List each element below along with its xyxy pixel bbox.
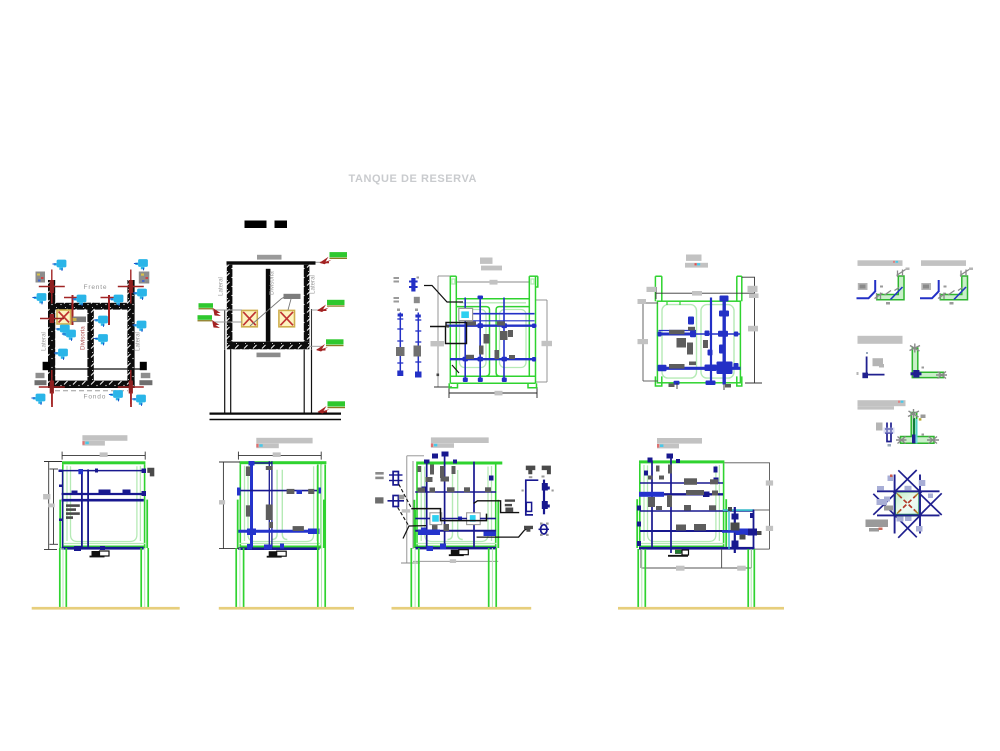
- svg-text:Divisoria: Divisoria: [80, 326, 87, 350]
- svg-text:Lateral: Lateral: [41, 332, 48, 351]
- svg-text:Frente: Frente: [84, 284, 108, 291]
- svg-text:Lateral: Lateral: [310, 275, 317, 294]
- svg-text:Fondo: Fondo: [84, 394, 107, 401]
- svg-text:Lateral: Lateral: [135, 332, 142, 351]
- svg-text:Lateral: Lateral: [218, 277, 225, 296]
- svg-text:Divisoria: Divisoria: [269, 271, 276, 295]
- svg-text:TANQUE DE RESERVA: TANQUE DE RESERVA: [349, 173, 478, 185]
